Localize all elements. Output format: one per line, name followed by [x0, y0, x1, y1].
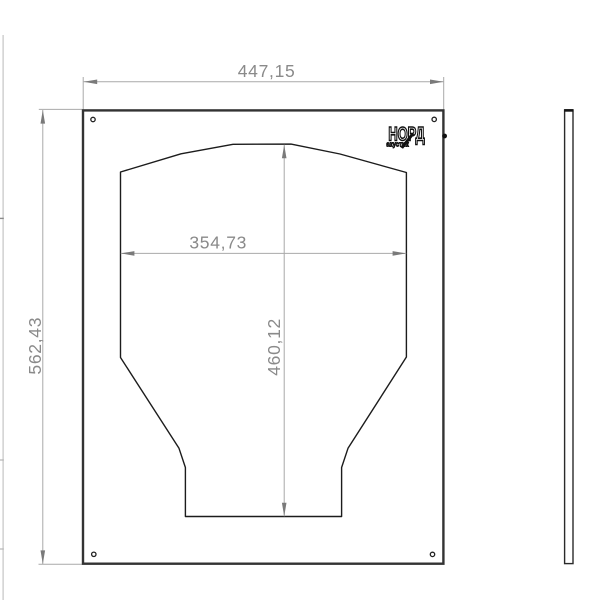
svg-text:460,12: 460,12 — [264, 318, 284, 376]
svg-text:354,73: 354,73 — [189, 232, 247, 252]
svg-text:562,43: 562,43 — [25, 317, 45, 375]
svg-text:447,15: 447,15 — [238, 61, 296, 81]
